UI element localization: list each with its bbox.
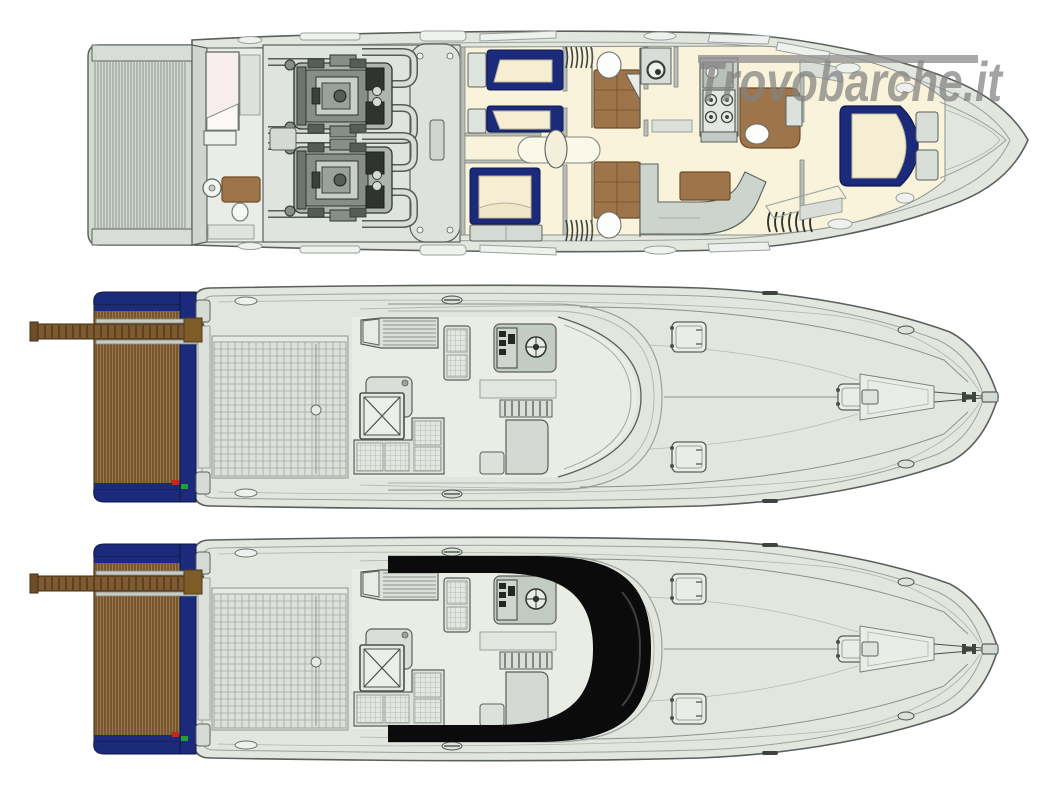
- svg-text:Trovobarche.it: Trovobarche.it: [696, 50, 1004, 113]
